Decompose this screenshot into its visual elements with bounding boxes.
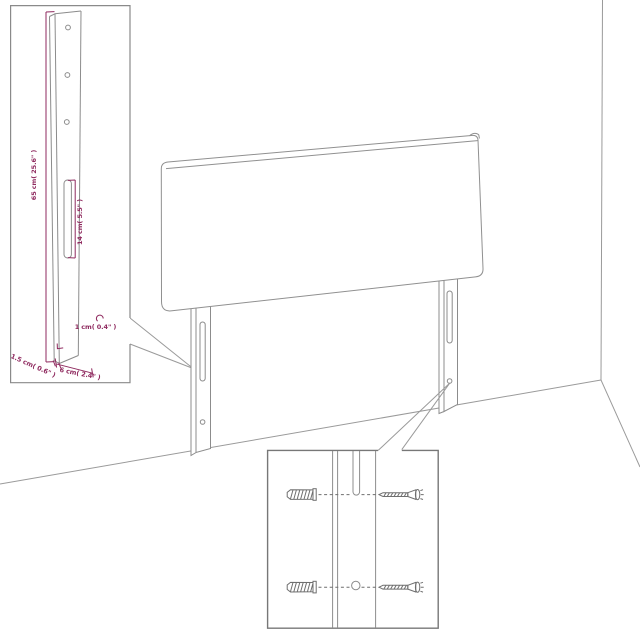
hardware-inset — [268, 450, 439, 628]
inset-leg-hole — [64, 120, 69, 125]
product-diagram: 65 cm( 25.6" ) 14 cm( 5.5" ) 1 cm( 0.4" … — [0, 0, 640, 640]
right-leg — [439, 276, 458, 414]
inset-leg-hole — [66, 25, 71, 30]
right-leg-hole — [447, 379, 452, 384]
left-leg-side-face — [191, 302, 196, 456]
left-leg-hole — [200, 420, 205, 425]
left-leg-slot — [200, 322, 205, 381]
callout-wedge-left — [130, 318, 191, 368]
hole-dimension-label: 1 cm( 0.4" ) — [75, 324, 117, 331]
headboard-outline — [161, 135, 483, 311]
diagram-linework — [0, 0, 640, 640]
right-leg-slot — [447, 291, 452, 343]
height-dimension-label: 65 cm( 25.6" ) — [30, 150, 37, 200]
callout-line — [402, 383, 450, 449]
wall-corner-vertical-line — [601, 0, 603, 380]
floor-line-right — [601, 380, 640, 467]
headboard-panel — [161, 133, 483, 311]
inset-leg-slot — [64, 180, 71, 258]
left-leg — [191, 301, 211, 456]
callout-line — [130, 318, 191, 367]
callout-line — [130, 344, 191, 368]
slot-dimension-label: 14 cm( 5.5" ) — [77, 199, 84, 245]
inset-leg-hole — [65, 73, 70, 78]
